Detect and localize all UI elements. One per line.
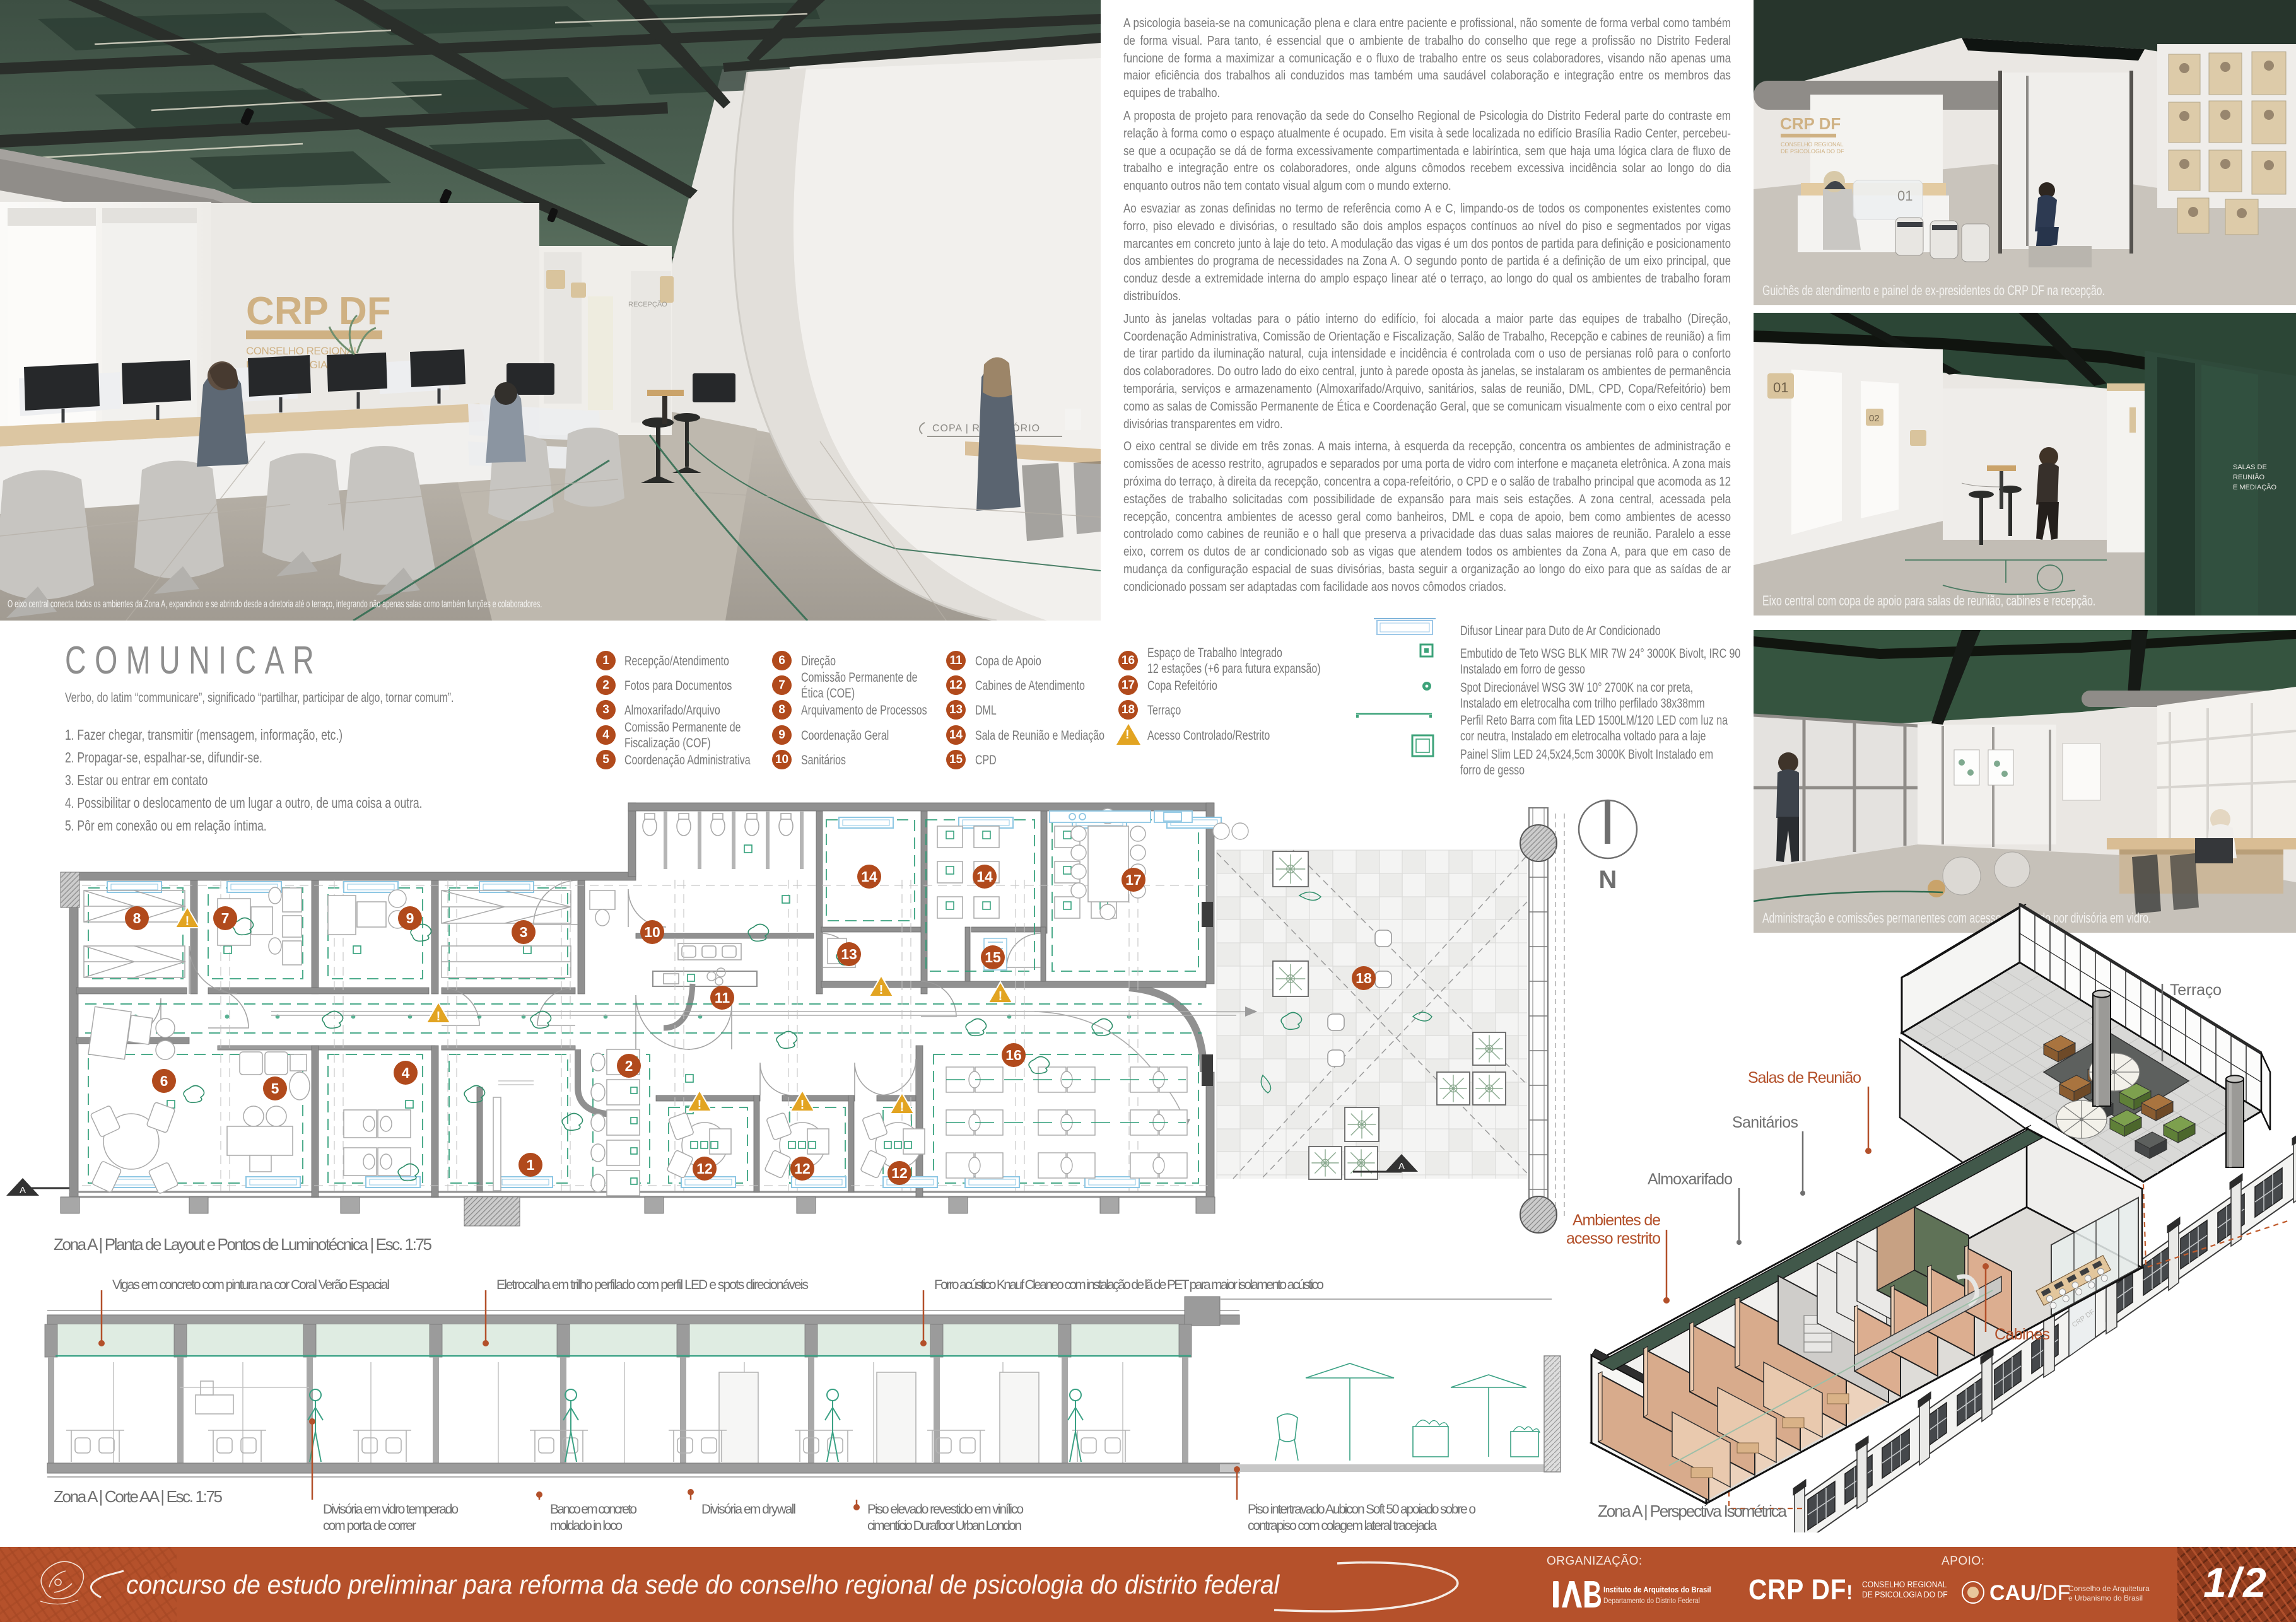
- svg-text:Departamento do Distrito Feder: Departamento do Distrito Federal: [1603, 1597, 1700, 1606]
- svg-text:7: 7: [221, 910, 230, 926]
- svg-text:cimentício Durafloor Urban Lon: cimentício Durafloor Urban London: [867, 1519, 1022, 1533]
- svg-text:4: 4: [402, 1065, 410, 1081]
- svg-text:CONSELHO REGIONAL: CONSELHO REGIONAL: [1781, 141, 1844, 148]
- svg-text:01: 01: [1773, 380, 1788, 395]
- svg-text:13: 13: [841, 946, 857, 962]
- svg-text:Divisória em vidro temperado: Divisória em vidro temperado: [323, 1502, 459, 1517]
- svg-text:!: !: [436, 1010, 441, 1024]
- svg-text:!: !: [999, 989, 1003, 1003]
- svg-text:A: A: [20, 1185, 26, 1196]
- svg-text:E MEDIAÇÃO: E MEDIAÇÃO: [2233, 483, 2277, 491]
- svg-text:acesso restrito: acesso restrito: [1566, 1230, 1661, 1247]
- svg-text:12: 12: [696, 1160, 713, 1177]
- svg-text:Cabines: Cabines: [1994, 1326, 2050, 1343]
- svg-text:Banco em concreto: Banco em concreto: [550, 1502, 637, 1517]
- svg-text:SALAS DE: SALAS DE: [2233, 464, 2267, 471]
- svg-text:14: 14: [976, 868, 993, 885]
- svg-text:Sanitários: Sanitários: [1732, 1114, 1798, 1131]
- svg-text:Eletrocalha em trilho perfilad: Eletrocalha em trilho perfilado com perf…: [496, 1278, 809, 1292]
- svg-text:17: 17: [1125, 872, 1142, 888]
- svg-text:18: 18: [1356, 970, 1372, 986]
- svg-text:10: 10: [644, 924, 660, 940]
- svg-text:!: !: [879, 983, 884, 997]
- svg-text:1: 1: [527, 1157, 535, 1173]
- svg-text:com porta de correr: com porta de correr: [323, 1519, 416, 1533]
- svg-text:5: 5: [271, 1080, 279, 1097]
- svg-text:12: 12: [794, 1160, 811, 1177]
- svg-text:Vigas em concreto com pintura: Vigas em concreto com pintura na cor Cor…: [112, 1278, 390, 1292]
- svg-text:2: 2: [625, 1058, 633, 1074]
- svg-text:14: 14: [861, 868, 877, 885]
- svg-text:11: 11: [715, 989, 730, 1006]
- svg-text:02: 02: [1869, 413, 1880, 424]
- svg-text:CAU/DF: CAU/DF: [1989, 1581, 2070, 1605]
- svg-text:3: 3: [520, 924, 528, 940]
- svg-text:DE PSICOLOGIA DO DF: DE PSICOLOGIA DO DF: [1781, 148, 1844, 155]
- svg-text:Terraço: Terraço: [2170, 981, 2222, 999]
- svg-text:!: !: [900, 1100, 905, 1114]
- svg-text:Piso elevado revestido em viní: Piso elevado revestido em vinílico: [867, 1502, 1024, 1517]
- svg-text:moldado in loco: moldado in loco: [550, 1519, 623, 1533]
- svg-text:16: 16: [1005, 1047, 1022, 1063]
- svg-text:!: !: [698, 1098, 702, 1112]
- svg-text:!: !: [800, 1098, 805, 1112]
- svg-text:9: 9: [406, 910, 414, 926]
- svg-text:Conselho de Arquitetura: Conselho de Arquitetura: [2068, 1584, 2150, 1593]
- svg-text:!: !: [185, 914, 190, 928]
- svg-text:Zona A | Corte AA | Esc. 1:75: Zona A | Corte AA | Esc. 1:75: [54, 1487, 223, 1506]
- svg-text:Zona A | Planta de Layout e Po: Zona A | Planta de Layout e Pontos de Lu…: [54, 1235, 432, 1254]
- svg-text:Salas de Reunião: Salas de Reunião: [1748, 1069, 1861, 1087]
- svg-text:Divisória em drywall: Divisória em drywall: [701, 1502, 796, 1517]
- svg-text:Zona A | Perspectiva Isométric: Zona A | Perspectiva Isométrica: [1598, 1502, 1788, 1520]
- svg-text:01: 01: [1897, 188, 1912, 204]
- svg-text:CRP DF: CRP DF: [1780, 114, 1841, 133]
- svg-text:Forro acústico Knauf Cleaneo c: Forro acústico Knauf Cleaneo com instala…: [934, 1278, 1324, 1292]
- svg-text:A: A: [1398, 1161, 1405, 1172]
- svg-text:contrapiso com colagem lateral: contrapiso com colagem lateral tracejada: [1248, 1519, 1437, 1533]
- svg-text:Ambientes de: Ambientes de: [1573, 1211, 1661, 1229]
- svg-text:Instituto de Arquitetos do Bra: Instituto de Arquitetos do Brasil: [1603, 1585, 1711, 1594]
- svg-text:Almoxarifado: Almoxarifado: [1648, 1170, 1733, 1188]
- svg-text:e Urbanismo do Brasil: e Urbanismo do Brasil: [2068, 1594, 2143, 1602]
- svg-text:REUNIÃO: REUNIÃO: [2233, 473, 2265, 481]
- svg-text:12: 12: [891, 1165, 908, 1181]
- svg-text:8: 8: [133, 910, 141, 926]
- svg-text:Piso intertravado Aubicon Soft: Piso intertravado Aubicon Soft 50 apoiad…: [1248, 1502, 1476, 1517]
- svg-text:15: 15: [985, 949, 1001, 966]
- svg-text:6: 6: [160, 1073, 168, 1089]
